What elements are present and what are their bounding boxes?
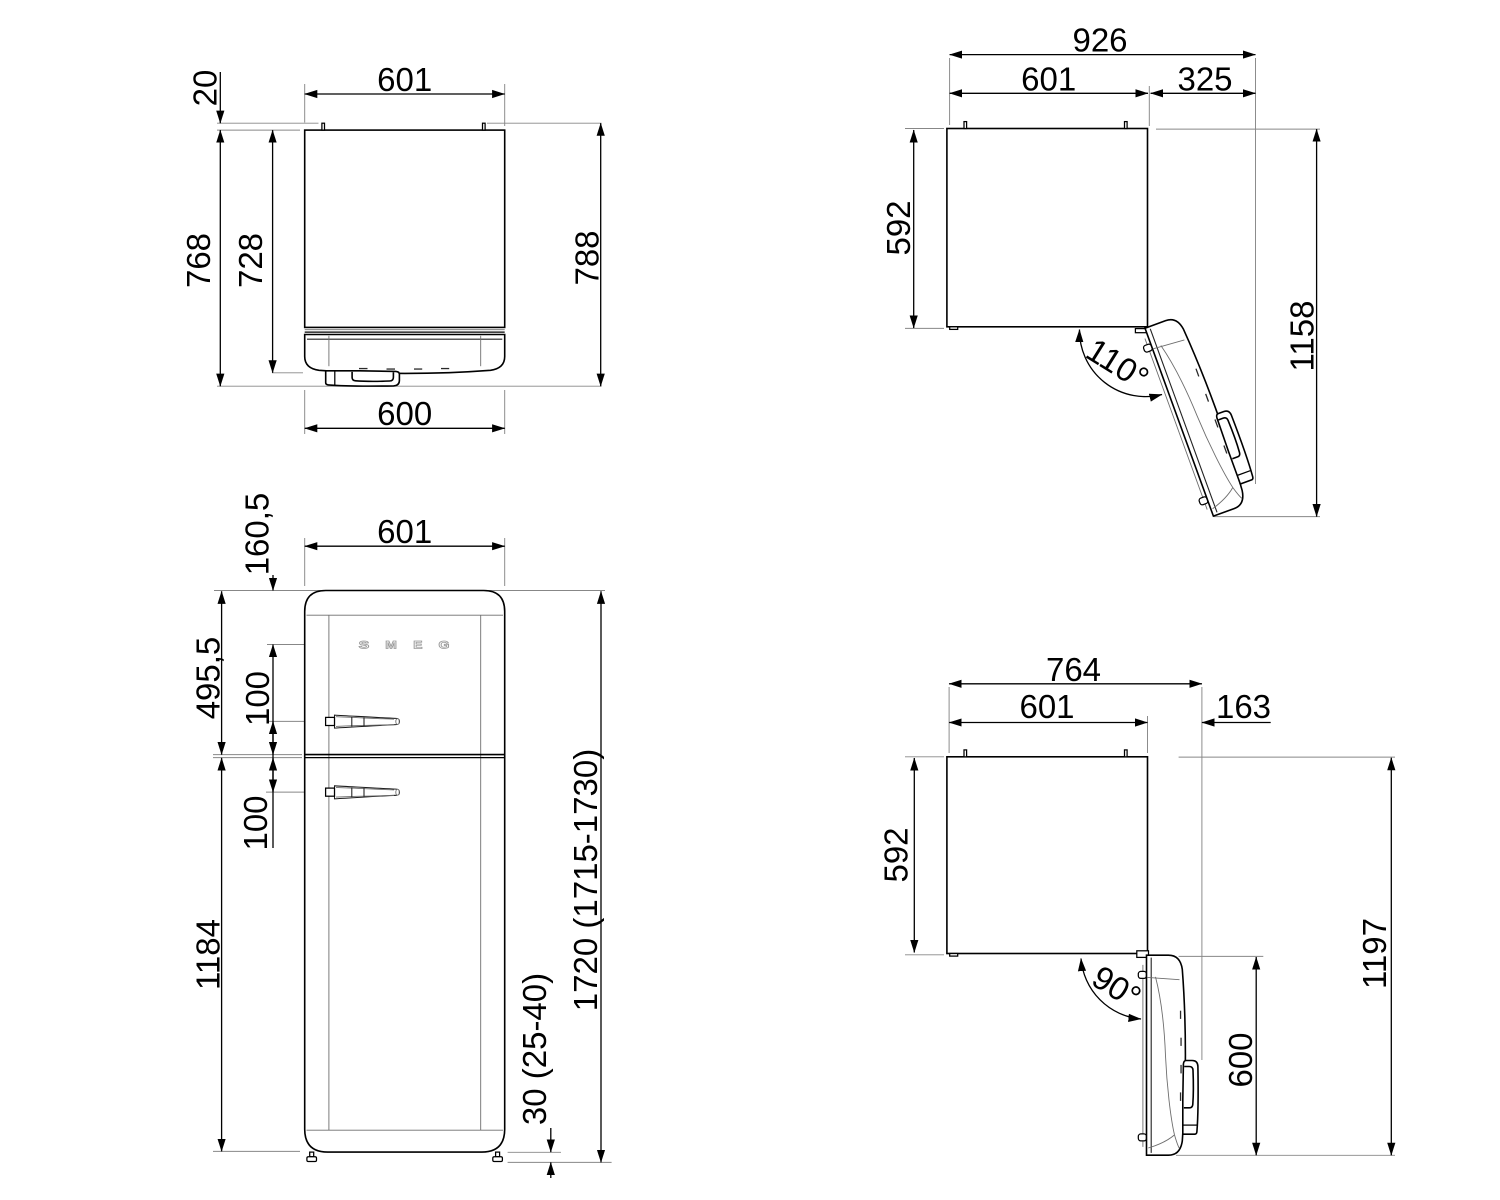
svg-text:788: 788 <box>569 230 606 285</box>
svg-text:1197: 1197 <box>1356 918 1393 989</box>
svg-text:M: M <box>385 640 397 652</box>
svg-text:768: 768 <box>180 233 217 288</box>
svg-text:601: 601 <box>377 513 432 550</box>
svg-text:G: G <box>439 640 450 652</box>
svg-text:163: 163 <box>1216 688 1271 725</box>
svg-text:600: 600 <box>377 395 432 432</box>
svg-text:E: E <box>413 640 423 652</box>
svg-text:1158: 1158 <box>1284 301 1321 372</box>
svg-text:764: 764 <box>1046 651 1101 688</box>
svg-text:495,5: 495,5 <box>190 637 227 720</box>
svg-text:1184: 1184 <box>190 919 227 990</box>
svg-text:592: 592 <box>878 827 915 882</box>
svg-text:601: 601 <box>377 61 432 98</box>
svg-text:600: 600 <box>1222 1032 1259 1087</box>
svg-text:592: 592 <box>880 200 917 255</box>
svg-text:20: 20 <box>186 70 223 107</box>
svg-text:100: 100 <box>237 795 274 850</box>
svg-text:728: 728 <box>232 233 269 288</box>
svg-text:601: 601 <box>1019 688 1074 725</box>
svg-text:100: 100 <box>239 671 276 726</box>
svg-text:601: 601 <box>1021 60 1076 97</box>
svg-text:160,5: 160,5 <box>239 493 276 576</box>
svg-text:1720 (1715-1730): 1720 (1715-1730) <box>567 749 604 1011</box>
svg-text:30 (25-40): 30 (25-40) <box>516 973 553 1125</box>
svg-text:S: S <box>359 640 370 652</box>
svg-text:926: 926 <box>1072 22 1127 59</box>
svg-text:325: 325 <box>1177 60 1232 97</box>
